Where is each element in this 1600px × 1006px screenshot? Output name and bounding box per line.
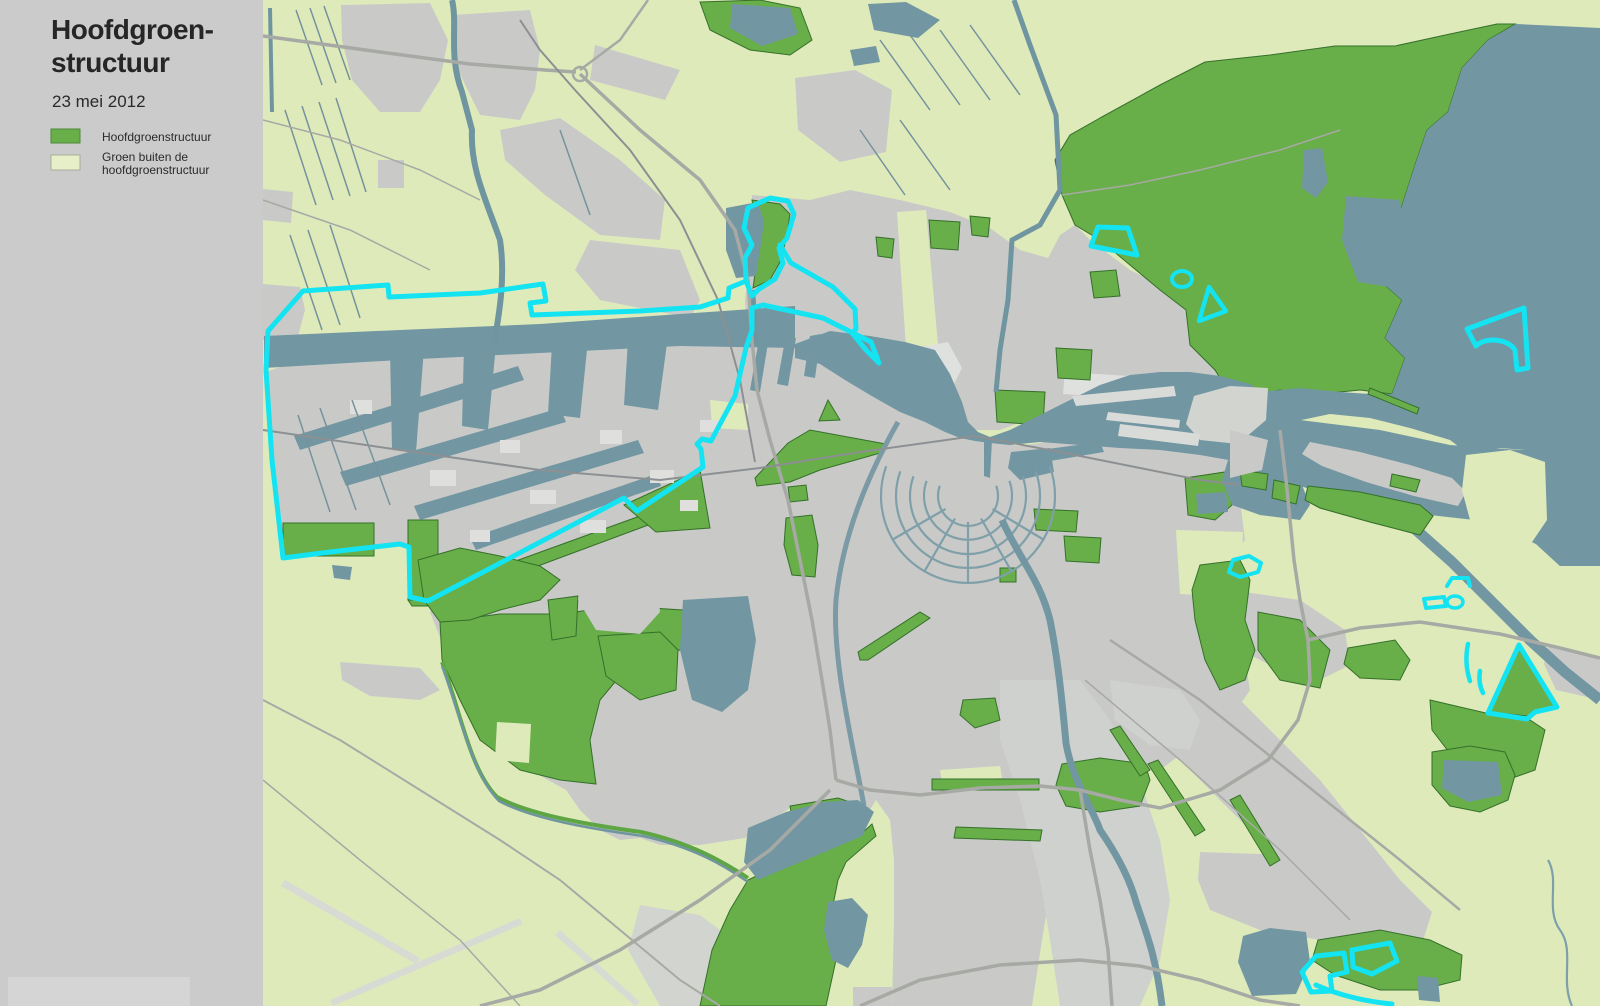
- svg-text:Groen buiten de: Groen buiten de: [102, 150, 188, 164]
- svg-text:23 mei 2012: 23 mei 2012: [52, 92, 146, 111]
- svg-text:Hoofdgroenstructuur: Hoofdgroenstructuur: [102, 130, 211, 144]
- svg-text:structuur: structuur: [51, 47, 170, 78]
- svg-text:hoofdgroenstructuur: hoofdgroenstructuur: [102, 163, 209, 177]
- svg-text:Hoofdgroen-: Hoofdgroen-: [51, 14, 214, 45]
